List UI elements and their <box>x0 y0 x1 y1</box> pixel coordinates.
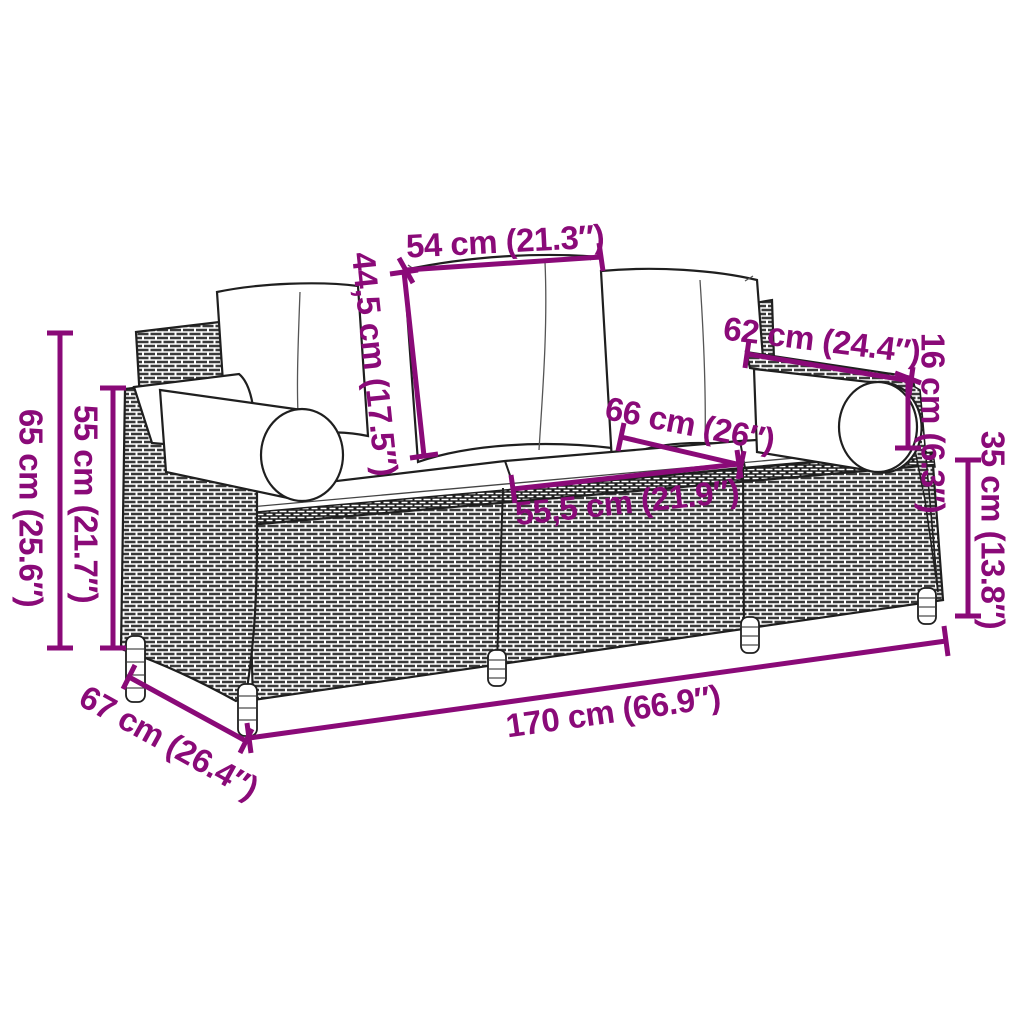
leg <box>918 588 936 624</box>
dim-armrest-height: 55 cm (21.7″) <box>68 388 127 648</box>
leg <box>741 617 759 653</box>
right-bolster-end <box>839 382 917 472</box>
sofa-dimension-diagram: 54 cm (21.3″) 44,5 cm (17.5″) 62 cm (24.… <box>0 0 1024 1024</box>
dimension-diagram-canvas: 54 cm (21.3″) 44,5 cm (17.5″) 62 cm (24.… <box>0 0 1024 1024</box>
dim-label-base-height: 35 cm (13.8″) <box>975 431 1012 629</box>
left-bolster-end <box>261 409 343 501</box>
back-pillow-middle <box>404 255 612 462</box>
dim-label-armrest-height: 55 cm (21.7″) <box>68 405 105 603</box>
leg <box>488 650 506 686</box>
dim-total-height: 65 cm (25.6″) <box>13 333 74 648</box>
dim-label-total-height: 65 cm (25.6″) <box>13 409 50 607</box>
dim-base-height: 35 cm (13.8″) <box>955 431 1012 629</box>
dim-label-bolster-height: 16 cm (6.3″) <box>915 333 952 513</box>
